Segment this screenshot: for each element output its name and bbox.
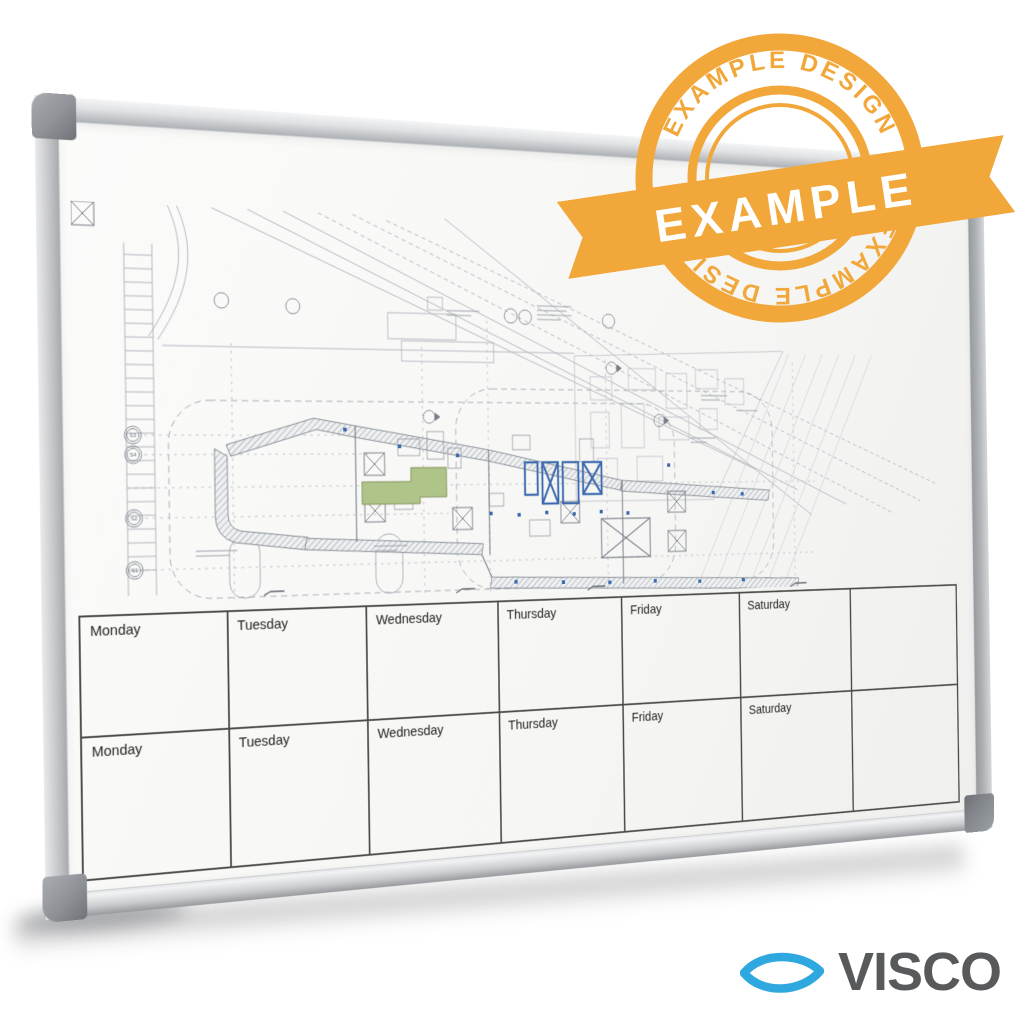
svg-text:S4: S4 bbox=[130, 453, 138, 459]
day-label: Tuesday bbox=[239, 732, 290, 751]
planner-cell-tuesday-1: Tuesday bbox=[228, 607, 369, 728]
svg-text:S1: S1 bbox=[131, 568, 138, 574]
day-label: Monday bbox=[90, 621, 141, 640]
planner-cell-saturday-1: Saturday bbox=[740, 589, 853, 696]
day-label: Thursday bbox=[507, 606, 557, 623]
day-label: Monday bbox=[92, 741, 143, 761]
planner-cell-blank-2 bbox=[853, 685, 959, 810]
corner-cap-top-left bbox=[31, 92, 76, 141]
visco-lens-icon bbox=[740, 944, 824, 1000]
svg-text:S2: S2 bbox=[131, 516, 138, 522]
day-label: Thursday bbox=[508, 715, 558, 733]
planner-cell-friday-1: Friday bbox=[623, 594, 742, 704]
day-label: Tuesday bbox=[237, 616, 288, 634]
planner-cell-tuesday-2: Tuesday bbox=[230, 721, 371, 866]
planner-cell-monday-1: Monday bbox=[80, 612, 229, 736]
street-hatch bbox=[695, 352, 874, 584]
planner-cell-monday-2: Monday bbox=[82, 730, 232, 880]
planner-cell-blank-1 bbox=[851, 586, 957, 690]
planner-cell-thursday-1: Thursday bbox=[498, 598, 624, 711]
planner-cell-friday-2: Friday bbox=[624, 698, 743, 831]
day-label: Friday bbox=[630, 602, 662, 618]
corner-cap-bottom-right bbox=[964, 793, 994, 833]
svg-text:S3: S3 bbox=[129, 433, 137, 439]
grid-bubble-labels: S3 S4 S2 S1 bbox=[129, 433, 139, 574]
whiteboard-product-photo: S3 S4 S2 S1 bbox=[0, 0, 1024, 1024]
day-label: Friday bbox=[632, 708, 664, 725]
day-label: Saturday bbox=[747, 597, 790, 613]
hatched-walls bbox=[214, 418, 799, 609]
stair-strip bbox=[124, 243, 157, 597]
planner-cell-saturday-2: Saturday bbox=[741, 692, 854, 821]
highlighted-area bbox=[362, 467, 447, 504]
visco-logo-text: VISCO bbox=[838, 945, 1001, 999]
day-label: Saturday bbox=[749, 700, 792, 717]
planner-cell-wednesday-1: Wednesday bbox=[367, 602, 500, 719]
visco-logo: VISCO bbox=[740, 944, 1001, 1000]
planner-cell-thursday-2: Thursday bbox=[500, 706, 626, 842]
braced-column bbox=[71, 201, 94, 226]
corner-cap-bottom-left bbox=[42, 873, 87, 923]
planner-cell-wednesday-2: Wednesday bbox=[369, 713, 502, 854]
day-label: Wednesday bbox=[377, 722, 443, 742]
day-label: Wednesday bbox=[376, 610, 442, 628]
